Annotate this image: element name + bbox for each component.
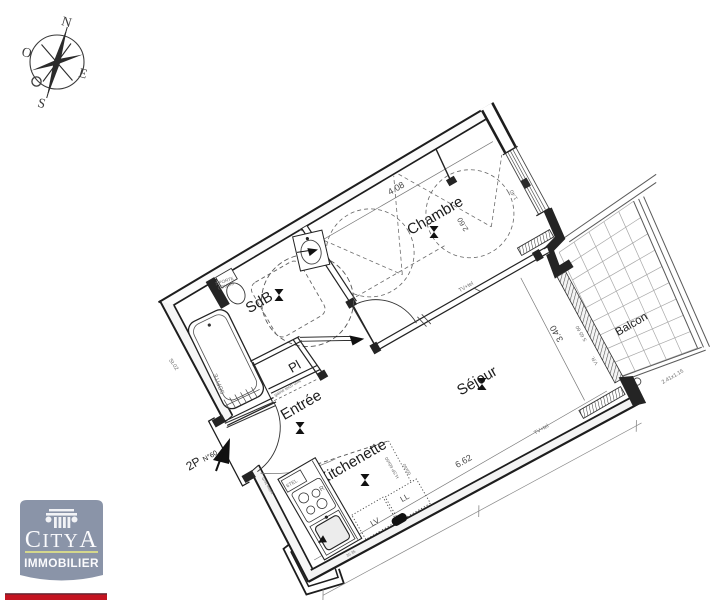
svg-text:Balcon: Balcon bbox=[613, 311, 649, 339]
svg-text:2.41x1.15: 2.41x1.15 bbox=[661, 369, 685, 386]
svg-text:S: S bbox=[36, 95, 47, 111]
svg-text:4.08: 4.08 bbox=[386, 180, 406, 197]
svg-text:Séjour: Séjour bbox=[454, 363, 500, 399]
svg-text:H.SP 60x60: H.SP 60x60 bbox=[384, 456, 401, 480]
svg-text:St.02: St.02 bbox=[167, 358, 179, 372]
svg-text:gaine tech vmc: gaine tech vmc bbox=[273, 378, 302, 398]
svg-text:V.R.: V.R. bbox=[590, 355, 600, 366]
svg-text:1.40: 1.40 bbox=[509, 188, 520, 200]
svg-text:2.60: 2.60 bbox=[455, 216, 470, 233]
svg-text:O: O bbox=[20, 44, 34, 61]
svg-text:LV: LV bbox=[369, 516, 382, 529]
svg-text:Chambre: Chambre bbox=[404, 193, 466, 239]
svg-text:Entrée: Entrée bbox=[278, 387, 325, 424]
svg-text:LL: LL bbox=[399, 492, 412, 505]
svg-text:N: N bbox=[60, 13, 74, 30]
svg-text:SdB: SdB bbox=[243, 288, 276, 317]
svg-text:E: E bbox=[77, 65, 89, 82]
svg-text:IMMOBILIER: IMMOBILIER bbox=[24, 556, 99, 570]
svg-text:CITYA: CITYA bbox=[25, 527, 98, 553]
svg-text:TV+tel: TV+tel bbox=[533, 423, 550, 436]
svg-text:60x60: 60x60 bbox=[401, 462, 412, 476]
svg-text:6.62: 6.62 bbox=[453, 452, 473, 469]
svg-text:3.40: 3.40 bbox=[548, 324, 565, 344]
